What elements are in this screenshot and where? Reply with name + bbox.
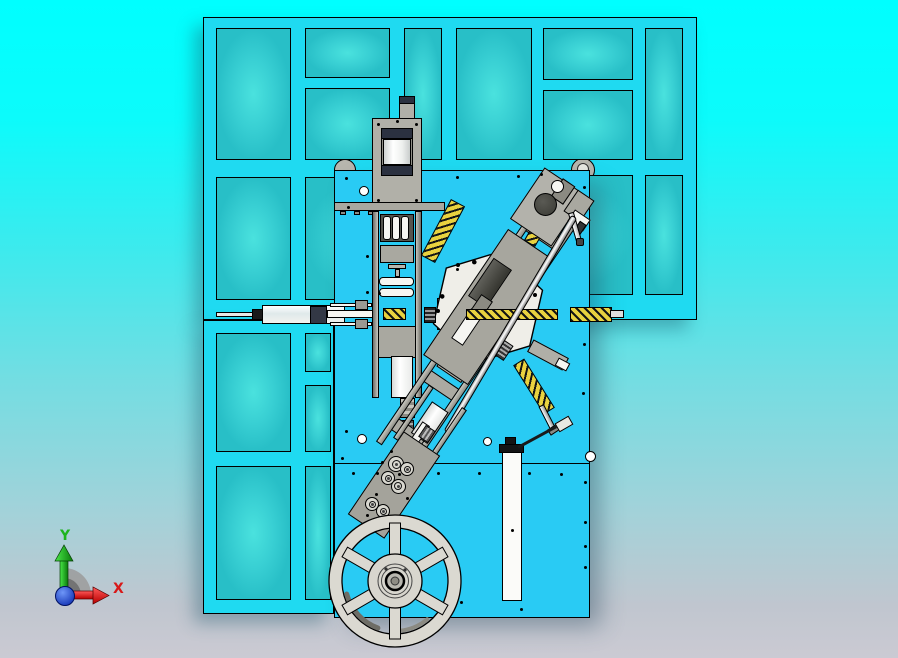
idler-roller <box>551 180 564 193</box>
screw-dot <box>347 206 350 209</box>
screw-dot <box>390 450 393 453</box>
frame-panel <box>645 28 683 160</box>
mini-cylinder <box>392 216 400 240</box>
tower-top-cap <box>399 96 415 104</box>
spring-rail-horizontal <box>570 307 612 322</box>
frame-panel <box>216 333 291 452</box>
frame-panel <box>305 385 331 452</box>
tower-cross-rail <box>334 202 445 211</box>
screw-dot <box>366 255 369 258</box>
press-cyl-cap-bottom <box>381 165 413 176</box>
origin-sphere[interactable] <box>56 587 75 606</box>
lower-block <box>378 326 416 358</box>
screw-dot <box>345 430 348 433</box>
cad-viewport: Y X <box>0 0 898 658</box>
tee-stem <box>395 269 400 277</box>
rail-tab <box>340 211 346 215</box>
screw-dot <box>352 472 355 475</box>
screw-dot <box>583 343 586 346</box>
frame-panel <box>456 28 532 160</box>
screw-dot <box>345 177 348 180</box>
tower-rail-right <box>415 211 422 398</box>
screw-dot <box>376 472 379 475</box>
frame-panel <box>216 28 291 160</box>
frame-panel <box>645 175 683 295</box>
screw-dot <box>437 472 440 475</box>
screw-dot <box>375 493 378 496</box>
screw-dot <box>377 123 380 126</box>
screw-dot <box>584 566 587 569</box>
screw-dot <box>366 291 369 294</box>
press-cyl-body <box>383 139 411 165</box>
frame-panel <box>305 333 331 372</box>
motor-pulley <box>534 193 557 216</box>
frame-panel <box>543 90 633 160</box>
straightener-roller <box>391 479 406 494</box>
plate-hole <box>483 437 492 446</box>
frame-panel <box>216 466 291 600</box>
mini-cylinder <box>401 216 409 240</box>
cylinder-coupler <box>310 306 327 324</box>
slide-block <box>380 245 414 263</box>
roller-capsule <box>379 288 414 297</box>
frame-panel <box>305 28 390 78</box>
screw-dot <box>378 292 381 295</box>
screw-dot <box>396 120 399 123</box>
rod-tip <box>610 310 624 318</box>
plate-edge-notch <box>585 451 596 462</box>
screw-dot <box>415 199 418 202</box>
screw-dot <box>415 123 418 126</box>
roller-capsule <box>379 277 414 286</box>
linear-guide-rail[interactable] <box>502 448 522 601</box>
screw-dot <box>584 521 587 524</box>
screw-dot <box>478 472 481 475</box>
screw-dot <box>560 473 563 476</box>
roller-center <box>395 463 398 466</box>
roller-center <box>397 485 400 488</box>
screw-dot <box>582 392 585 395</box>
x-axis-label: X <box>113 581 124 597</box>
push-rod-tip <box>576 238 584 246</box>
roller-center <box>371 503 374 506</box>
screw-dot <box>520 608 523 611</box>
screw-dot <box>528 472 531 475</box>
axis-triad[interactable]: Y X <box>40 525 135 615</box>
y-axis-label: Y <box>59 528 71 544</box>
wire-spool-wheel[interactable] <box>327 513 465 651</box>
mini-cylinder <box>383 216 391 240</box>
screw-dot <box>584 545 587 548</box>
rail-tab <box>354 211 360 215</box>
screw-dot <box>406 497 409 500</box>
rail-carriage-knob <box>505 437 516 445</box>
screw-dot <box>341 457 344 460</box>
roller-center <box>387 477 390 480</box>
press-cyl-cap-top <box>381 128 413 139</box>
screw-dot <box>517 175 520 178</box>
screw-dot <box>540 173 543 176</box>
straightener-roller <box>400 462 414 476</box>
hex-stripe-block <box>424 307 436 323</box>
screw-dot <box>456 268 459 271</box>
frame-panel <box>216 177 291 300</box>
roller-center <box>406 468 409 471</box>
spring-rail-horizontal <box>383 308 406 320</box>
frame-panel <box>543 28 633 80</box>
screw-dot <box>381 461 384 464</box>
screw-dot <box>584 481 587 484</box>
screw-dot <box>377 199 380 202</box>
tower-rail-left <box>372 211 379 398</box>
screw-dot <box>583 186 586 189</box>
screw-dot <box>398 473 401 476</box>
plate-seam <box>335 463 589 464</box>
screw-dot <box>456 176 459 179</box>
rail-dot <box>511 529 514 532</box>
